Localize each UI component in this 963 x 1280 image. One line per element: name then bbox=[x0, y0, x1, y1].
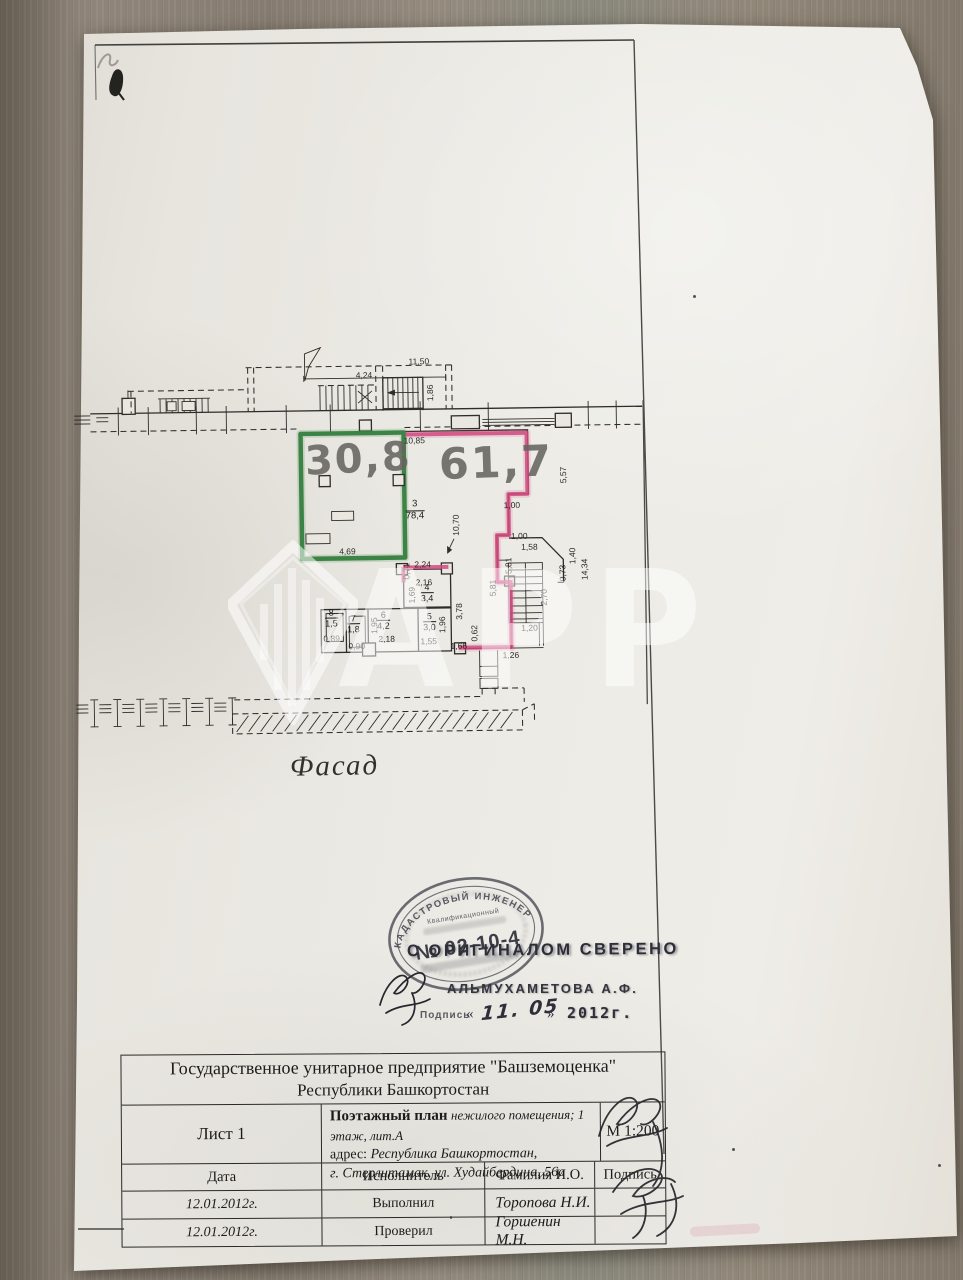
room-label-3: 378,4 bbox=[405, 499, 424, 522]
sheet-number-cell: Лист 1 bbox=[122, 1104, 322, 1163]
stamp-year: 2012г. bbox=[567, 1004, 633, 1022]
row-date: 12.01.2012г. bbox=[122, 1218, 322, 1246]
paper-speck bbox=[693, 295, 696, 298]
address-label: адрес: bbox=[330, 1147, 367, 1162]
plan-description-cell: Поэтажный план нежилого помещения; 1 эта… bbox=[322, 1103, 600, 1163]
dimension-label: 10,85 bbox=[404, 435, 425, 445]
row-role: Выполнил bbox=[322, 1189, 485, 1217]
dimension-label: 11,50 bbox=[408, 356, 429, 366]
column-header-date: Дата bbox=[122, 1163, 322, 1190]
dimension-label: 10,70 bbox=[451, 514, 461, 535]
approval-signatures bbox=[583, 1072, 703, 1247]
row-date: 12.01.2012г. bbox=[122, 1190, 322, 1218]
desc-title: Поэтажный план bbox=[330, 1108, 448, 1125]
quote-close: » bbox=[547, 1006, 555, 1023]
address-line1: Республика Башкортостан, bbox=[371, 1146, 538, 1162]
handwritten-area-30-8: 30,8 bbox=[304, 434, 413, 485]
dimension-label: 5,57 bbox=[558, 467, 568, 484]
stamp-engineer-name: АЛЬМУХАМЕТОВА А.Ф. bbox=[447, 981, 638, 996]
ink-blot bbox=[88, 46, 138, 106]
dimension-label: 1,86 bbox=[425, 385, 435, 402]
dimension-label: 4,24 bbox=[356, 370, 373, 380]
watermark-text: АРР bbox=[338, 550, 716, 712]
paper-speck bbox=[938, 1164, 941, 1167]
quote-open: « bbox=[466, 1006, 474, 1023]
engineer-signature bbox=[372, 955, 452, 1035]
facade-label: Фасад bbox=[290, 749, 380, 784]
column-header-role: Исполнитель bbox=[322, 1162, 485, 1189]
paper-speck bbox=[732, 1148, 735, 1151]
dimension-label: 1,00 bbox=[503, 500, 520, 510]
row-name: Горшенин М.Н. bbox=[485, 1217, 595, 1245]
row-role: Проверил bbox=[322, 1217, 485, 1245]
handwritten-area-61-7: 61,7 bbox=[438, 436, 554, 490]
column-header-name: Фамилия И.О. bbox=[485, 1162, 595, 1189]
